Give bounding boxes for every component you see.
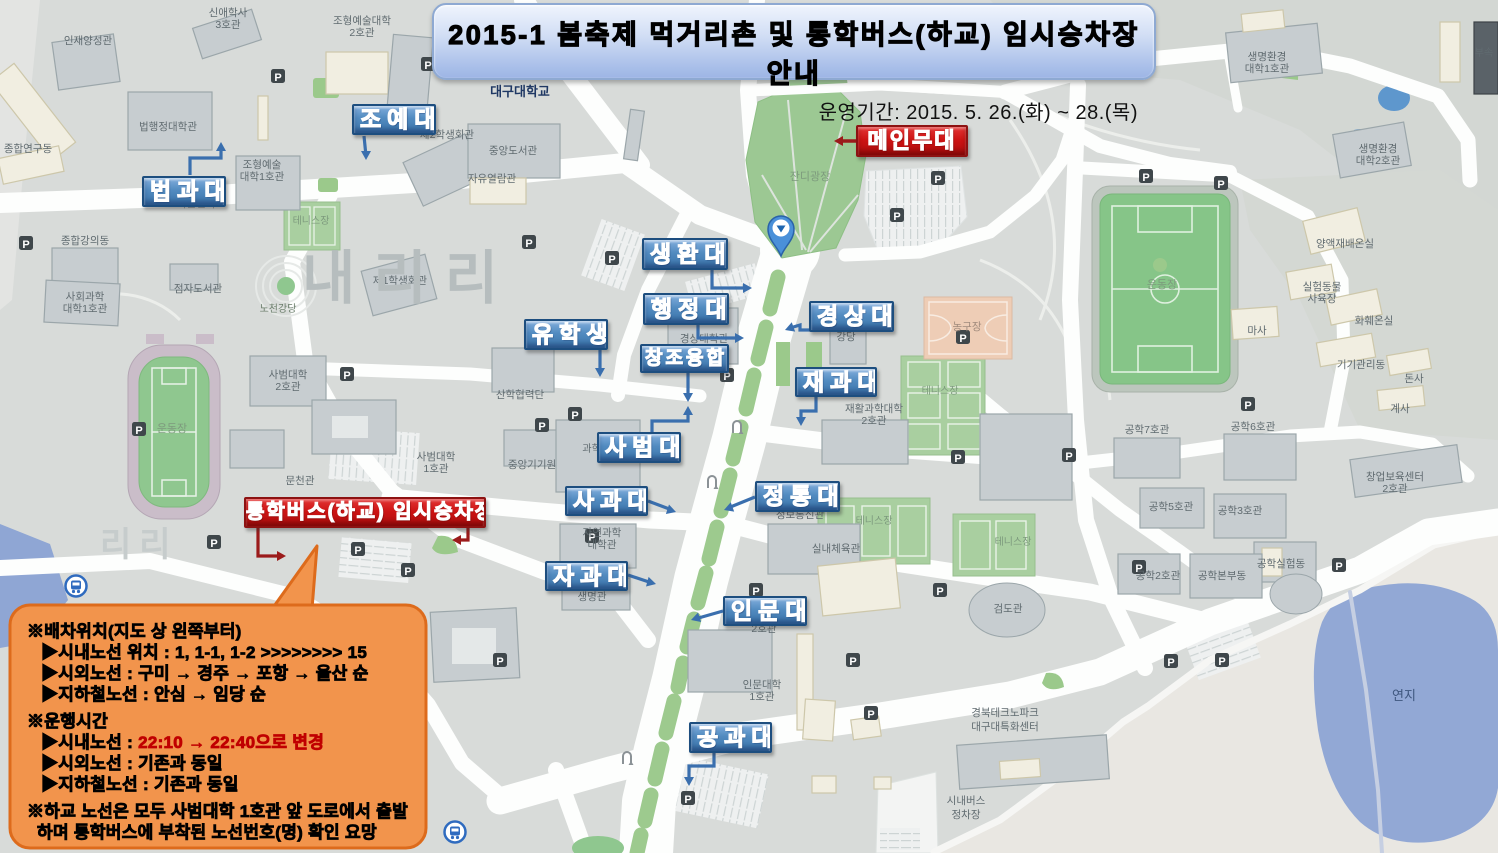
svg-text:P: P bbox=[404, 566, 411, 578]
svg-text:P: P bbox=[343, 370, 350, 382]
svg-text:P: P bbox=[1065, 451, 1072, 463]
svg-text:P: P bbox=[954, 453, 961, 465]
svg-text:3호관: 3호관 bbox=[215, 19, 240, 31]
svg-text:테니스장: 테니스장 bbox=[293, 215, 330, 227]
svg-text:대학1호관: 대학1호관 bbox=[240, 171, 285, 183]
svg-text:법행정대학관: 법행정대학관 bbox=[139, 121, 197, 133]
svg-text:운동장: 운동장 bbox=[157, 422, 187, 435]
svg-text:검도관: 검도관 bbox=[994, 603, 1023, 615]
svg-text:리리: 리리 bbox=[100, 526, 179, 564]
svg-text:P: P bbox=[893, 211, 900, 223]
svg-text:P: P bbox=[1218, 656, 1225, 668]
svg-text:인문대학: 인문대학 bbox=[743, 679, 782, 691]
svg-text:생명환경: 생명환경 bbox=[1359, 142, 1398, 155]
svg-text:실험동물: 실험동물 bbox=[1303, 281, 1342, 293]
svg-text:P: P bbox=[354, 545, 361, 557]
svg-text:P: P bbox=[849, 656, 856, 668]
svg-text:창업보육센터: 창업보육센터 bbox=[1366, 470, 1424, 483]
svg-text:1호관: 1호관 bbox=[423, 463, 448, 475]
svg-text:신애학사: 신애학사 bbox=[209, 7, 248, 19]
svg-text:대학관: 대학관 bbox=[588, 539, 617, 551]
svg-text:시내버스: 시내버스 bbox=[947, 795, 986, 807]
svg-text:공학2호관: 공학2호관 bbox=[1136, 570, 1181, 582]
svg-text:화훼온실: 화훼온실 bbox=[1355, 315, 1394, 327]
svg-text:테니스장: 테니스장 bbox=[922, 385, 959, 397]
svg-text:경북테크노파크: 경북테크노파크 bbox=[971, 706, 1039, 719]
svg-text:부속: 부속 bbox=[1475, 47, 1493, 59]
svg-text:중앙기기원: 중앙기기원 bbox=[508, 459, 556, 471]
svg-text:P: P bbox=[608, 254, 615, 266]
svg-text:P: P bbox=[496, 656, 503, 668]
svg-text:생명관: 생명관 bbox=[578, 591, 607, 603]
svg-text:2호관: 2호관 bbox=[1382, 483, 1407, 495]
svg-text:P: P bbox=[934, 174, 941, 186]
svg-text:공학5호관: 공학5호관 bbox=[1149, 501, 1194, 513]
svg-text:조형예술대학: 조형예술대학 bbox=[333, 14, 391, 27]
svg-text:종합연구동: 종합연구동 bbox=[4, 143, 53, 155]
svg-text:P: P bbox=[1244, 400, 1251, 412]
svg-text:인재양성관: 인재양성관 bbox=[64, 35, 113, 47]
svg-text:실내체육관: 실내체육관 bbox=[812, 543, 861, 555]
svg-text:조형예술: 조형예술 bbox=[243, 158, 282, 171]
svg-text:P: P bbox=[538, 421, 545, 433]
svg-text:사회과학: 사회과학 bbox=[66, 291, 105, 303]
svg-text:P: P bbox=[1217, 179, 1224, 191]
svg-text:내리리: 내리리 bbox=[302, 246, 516, 311]
svg-text:강당: 강당 bbox=[836, 331, 856, 343]
svg-text:공학본부동: 공학본부동 bbox=[1198, 570, 1247, 582]
svg-text:P: P bbox=[22, 239, 29, 251]
svg-text:노천강당: 노천강당 bbox=[260, 303, 297, 315]
svg-text:P: P bbox=[1167, 657, 1174, 669]
svg-text:대구대특화센터: 대구대특화센터 bbox=[971, 721, 1039, 733]
svg-text:자연과학: 자연과학 bbox=[583, 527, 622, 539]
svg-text:2호관: 2호관 bbox=[275, 381, 300, 393]
svg-text:중앙도서관: 중앙도서관 bbox=[489, 145, 538, 157]
svg-text:테니스장: 테니스장 bbox=[856, 515, 893, 527]
svg-text:P: P bbox=[210, 538, 217, 550]
svg-text:2호관: 2호관 bbox=[349, 27, 374, 39]
svg-text:사범대학: 사범대학 bbox=[269, 369, 308, 381]
svg-text:생명환경: 생명환경 bbox=[1248, 50, 1287, 63]
svg-text:대학2호관: 대학2호관 bbox=[1356, 155, 1401, 167]
svg-text:P: P bbox=[959, 333, 966, 345]
svg-text:P: P bbox=[1142, 172, 1149, 184]
svg-text:마사: 마사 bbox=[1247, 325, 1267, 337]
svg-text:대학1호관: 대학1호관 bbox=[1245, 63, 1290, 75]
svg-text:공학7호관: 공학7호관 bbox=[1125, 424, 1170, 436]
svg-text:P: P bbox=[571, 410, 578, 422]
svg-text:P: P bbox=[684, 794, 691, 806]
svg-text:P: P bbox=[424, 60, 431, 72]
svg-text:테니스장: 테니스장 bbox=[995, 536, 1032, 548]
svg-text:공학3호관: 공학3호관 bbox=[1218, 505, 1263, 517]
svg-text:종합강의동: 종합강의동 bbox=[61, 235, 110, 247]
svg-text:공학6호관: 공학6호관 bbox=[1231, 421, 1276, 433]
svg-text:점자도서관: 점자도서관 bbox=[174, 283, 223, 295]
svg-text:사범대학: 사범대학 bbox=[417, 451, 456, 463]
svg-text:2호관: 2호관 bbox=[861, 415, 886, 427]
svg-text:1호관: 1호관 bbox=[749, 691, 774, 703]
svg-text:자유열람관: 자유열람관 bbox=[468, 172, 517, 185]
svg-text:P: P bbox=[867, 709, 874, 721]
svg-text:공학실험동: 공학실험동 bbox=[1257, 558, 1306, 570]
svg-text:P: P bbox=[936, 586, 943, 598]
svg-text:기기관리동: 기기관리동 bbox=[1337, 359, 1386, 371]
svg-text:문천관: 문천관 bbox=[286, 475, 315, 487]
svg-text:산학협력단: 산학협력단 bbox=[496, 388, 545, 401]
svg-text:연지: 연지 bbox=[1392, 688, 1416, 703]
svg-text:양액재배온실: 양액재배온실 bbox=[1316, 238, 1374, 250]
svg-text:농구장: 농구장 bbox=[953, 321, 982, 333]
svg-text:P: P bbox=[274, 72, 281, 84]
svg-text:대학1호관: 대학1호관 bbox=[63, 303, 108, 315]
svg-text:정차장: 정차장 bbox=[952, 809, 981, 821]
svg-text:잔디광장: 잔디광장 bbox=[790, 170, 830, 183]
svg-text:재활과학대학: 재활과학대학 bbox=[845, 402, 903, 415]
svg-text:P: P bbox=[525, 238, 532, 250]
svg-text:운동장: 운동장 bbox=[1147, 278, 1177, 291]
svg-text:P: P bbox=[1335, 561, 1342, 573]
svg-text:계사: 계사 bbox=[1390, 403, 1410, 415]
svg-text:사육장: 사육장 bbox=[1308, 293, 1337, 305]
svg-text:P: P bbox=[135, 425, 142, 437]
svg-text:돈사: 돈사 bbox=[1404, 373, 1424, 385]
